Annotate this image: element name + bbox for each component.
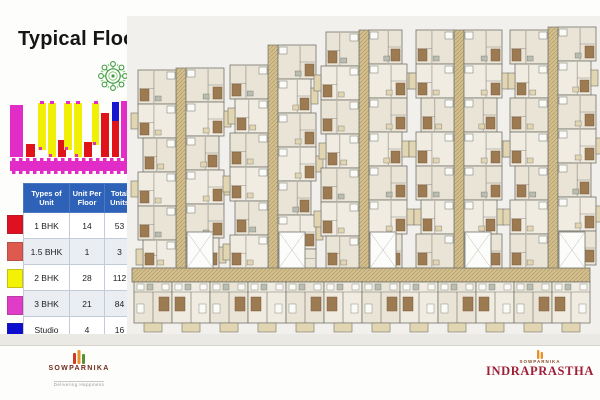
unit-type-cell: 2 BHK [24,265,70,291]
indraprastha-logo: SOWPARNIKA INDRAPRASTHA [486,349,594,378]
floor-plan [127,16,600,346]
unit-color-swatch [7,242,23,261]
table-header: Types of Unit [24,184,70,213]
key-plan-mini-map [9,99,135,177]
unit-table-body: 1 BHK14531.5 BHK132 BHK281123 BHK2184Stu… [24,213,135,343]
table-row: 3 BHK2184 [24,291,135,317]
compass-icon [96,59,130,93]
unit-table: Types of UnitUnit Per FloorTotal Units 1… [23,183,135,343]
unit-type-cell: 1.5 BHK [24,239,70,265]
table-row: 1 BHK1453 [24,213,135,239]
table-row: 2 BHK28112 [24,265,135,291]
unit-type-cell: 3 BHK [24,291,70,317]
brand-name: SOWPARNIKA [34,365,124,373]
table-header: Unit Per Floor [70,184,105,213]
per-floor-cell: 28 [70,265,105,291]
unit-color-swatch [7,269,23,288]
unit-table-header: Types of UnitUnit Per FloorTotal Units [24,184,135,213]
unit-summary: Types of UnitUnit Per FloorTotal Units 1… [23,183,135,343]
sowparnika-logo: SOWPARNIKA Delivering Happiness [34,350,124,390]
project-name: INDRAPRASTHA [486,365,594,378]
per-floor-cell: 1 [70,239,105,265]
per-floor-cell: 21 [70,291,105,317]
unit-color-swatch [7,296,23,315]
table-row: 1.5 BHK13 [24,239,135,265]
unit-type-cell: 1 BHK [24,213,70,239]
unit-color-legend [7,215,22,350]
per-floor-cell: 14 [70,213,105,239]
brand-tagline: Delivering Happiness [54,381,105,388]
sowparnika-logo-icon [70,350,88,365]
unit-color-swatch [7,215,23,234]
